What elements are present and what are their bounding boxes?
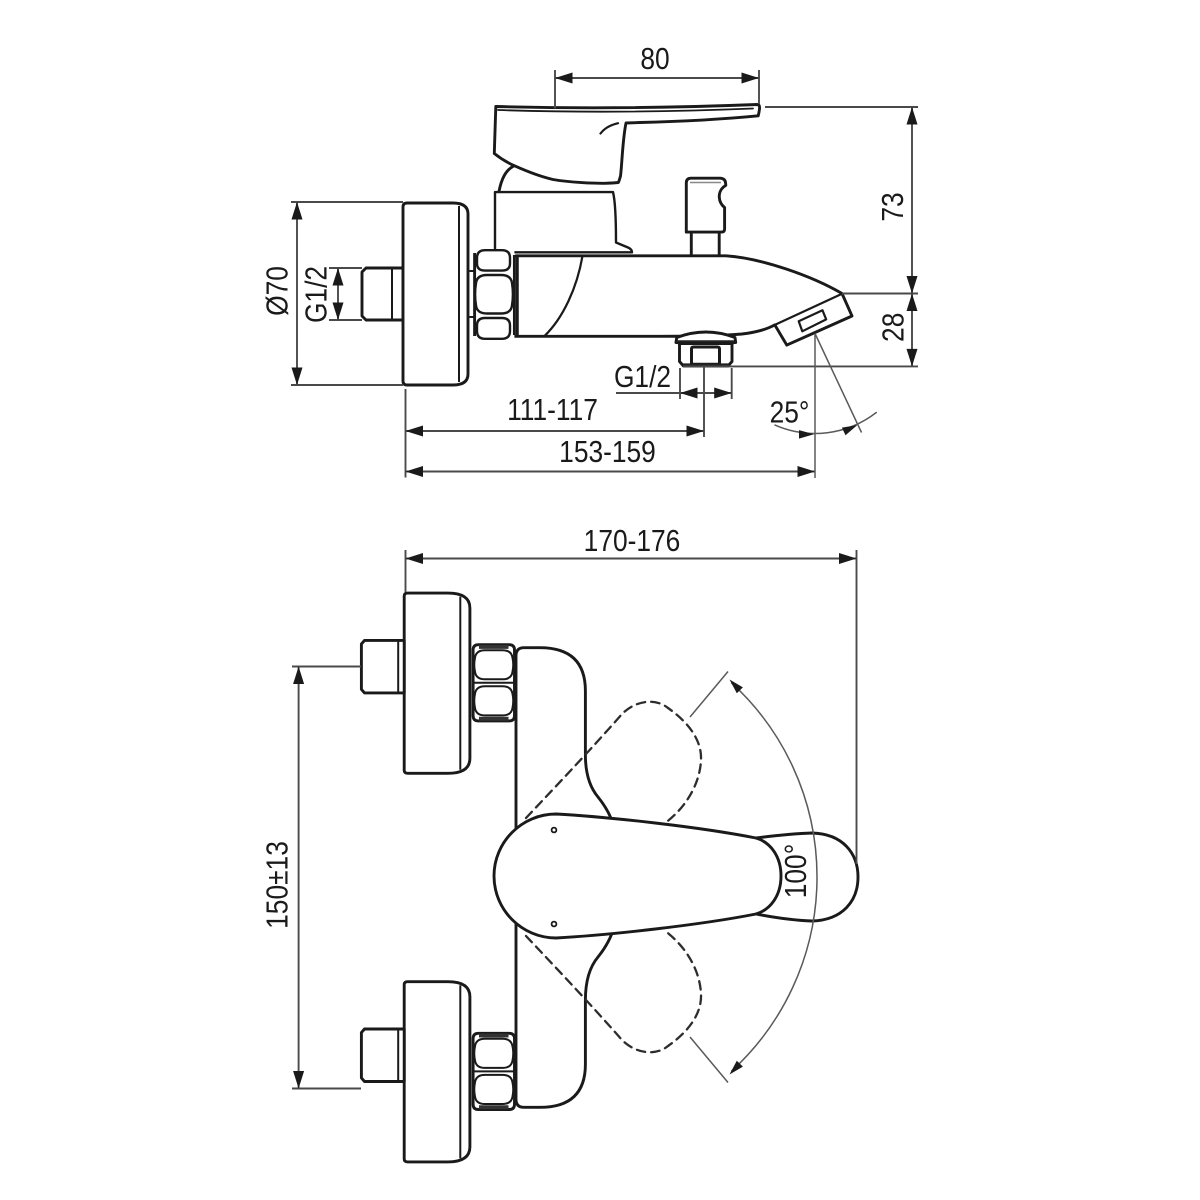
svg-text:G1/2: G1/2	[300, 266, 334, 323]
svg-text:111-117: 111-117	[507, 393, 598, 427]
svg-text:25°: 25°	[770, 396, 810, 430]
svg-text:150±13: 150±13	[261, 841, 295, 929]
svg-text:153-159: 153-159	[559, 435, 656, 469]
svg-text:100°: 100°	[779, 844, 813, 898]
svg-text:Ø70: Ø70	[261, 266, 295, 316]
svg-text:73: 73	[876, 192, 910, 221]
svg-text:80: 80	[640, 42, 669, 76]
svg-text:170-176: 170-176	[584, 524, 681, 558]
svg-text:G1/2: G1/2	[614, 360, 671, 394]
svg-text:28: 28	[877, 313, 911, 342]
